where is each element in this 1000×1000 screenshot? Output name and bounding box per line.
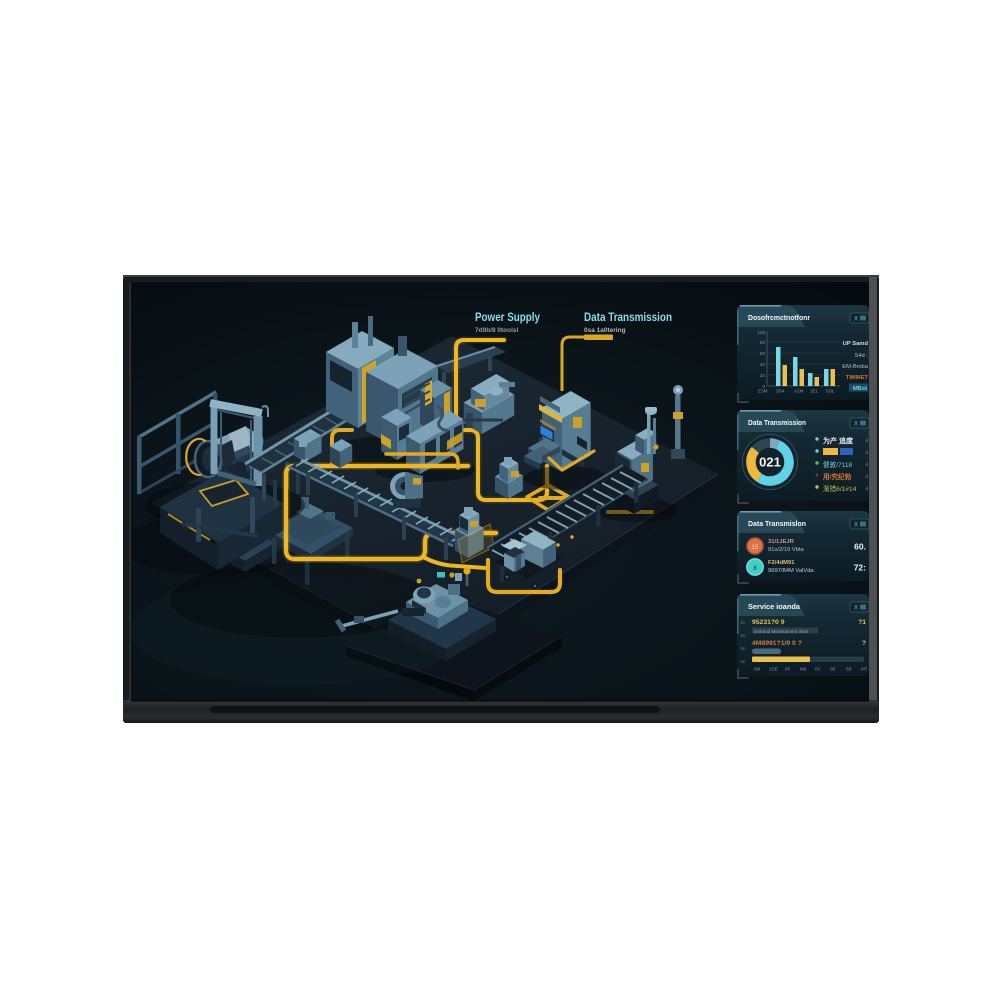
svg-text:F2/4dM91: F2/4dM91 — [768, 560, 795, 566]
svg-text:4M8991?1/9 0 ?: 4M8991?1/9 0 ? — [752, 640, 802, 647]
svg-text:0M: 0M — [754, 667, 761, 672]
svg-text:0E: 0E — [830, 667, 836, 672]
svg-text:M7: M7 — [861, 667, 868, 672]
svg-text:4s: 4s — [740, 659, 745, 664]
svg-text:Data Transmislon: Data Transmislon — [748, 519, 806, 528]
svg-text:d: d — [865, 450, 868, 455]
svg-text:d: d — [865, 474, 868, 479]
svg-text:TIMMET: TIMMET — [846, 375, 869, 381]
svg-text:03: 03 — [815, 667, 821, 672]
svg-text:D5L: D5L — [826, 389, 835, 394]
svg-text:0sa 1a0tering: 0sa 1a0tering — [584, 327, 626, 334]
svg-text:?1: ?1 — [858, 619, 866, 626]
svg-text:UP Samd: UP Samd — [843, 341, 869, 347]
svg-text:为产 追度: 为产 追度 — [823, 436, 854, 445]
svg-text:021: 021 — [759, 455, 781, 470]
svg-text:?: ? — [862, 640, 866, 647]
svg-text:MBst: MBst — [853, 386, 867, 392]
svg-text:d: d — [865, 462, 868, 467]
svg-text:E3M: E3M — [758, 389, 768, 394]
svg-text:5B: 5B — [846, 667, 852, 672]
svg-text:Power Supply: Power Supply — [475, 312, 541, 324]
svg-text:72:: 72: — [854, 563, 866, 573]
svg-text:91s/2/19 Vbta: 91s/2/19 Vbta — [768, 547, 805, 553]
svg-text:d: d — [865, 438, 868, 443]
svg-text:1s: 1s — [740, 620, 745, 625]
svg-text:31/1JEJR: 31/1JEJR — [768, 539, 795, 545]
svg-text:80: 80 — [760, 340, 766, 345]
svg-text:Data Transmission: Data Transmission — [748, 418, 806, 427]
svg-text:Data Transmission: Data Transmission — [584, 312, 672, 324]
svg-text:d: d — [865, 486, 868, 491]
svg-text:1EL: 1EL — [810, 389, 819, 394]
svg-text:Dosofrcmctnotfonr: Dosofrcmctnotfonr — [748, 313, 810, 322]
svg-text:Service ioanda: Service ioanda — [748, 602, 801, 611]
svg-text:smband Mnamamnnt 4h4s: smband Mnamamnnt 4h4s — [754, 629, 809, 634]
svg-text:健敦/7118: 健敦/7118 — [823, 460, 853, 469]
svg-text:95231?0 9: 95231?0 9 — [752, 619, 785, 626]
svg-text:100: 100 — [757, 330, 765, 335]
svg-text:15: 15 — [752, 545, 759, 551]
svg-text:A2M: A2M — [794, 389, 804, 394]
svg-text:1DE: 1DE — [769, 667, 778, 672]
svg-text:X: X — [854, 422, 858, 428]
svg-text:9697/84M ValVda: 9697/84M ValVda — [768, 568, 814, 574]
svg-text:20: 20 — [760, 373, 766, 378]
svg-text:S4d :: S4d : — [854, 353, 868, 359]
svg-text:2s: 2s — [740, 633, 745, 638]
svg-text:X: X — [854, 606, 858, 612]
svg-text:渐措6/1#14: 渐措6/1#14 — [823, 484, 857, 493]
svg-text:60: 60 — [760, 351, 766, 356]
svg-text:3D4: 3D4 — [776, 389, 785, 394]
svg-text:7d9b/8 0toolsl: 7d9b/8 0toolsl — [475, 327, 519, 334]
svg-text:用/究纪勃: 用/究纪勃 — [823, 472, 852, 481]
svg-text:40: 40 — [760, 362, 766, 367]
svg-text:60.: 60. — [854, 542, 866, 552]
svg-text:X: X — [854, 523, 858, 529]
svg-text:3s: 3s — [740, 646, 745, 651]
svg-text:X: X — [854, 317, 858, 323]
svg-text:0F: 0F — [785, 667, 791, 672]
svg-text:M9: M9 — [800, 667, 807, 672]
svg-text:EM-Bmba: EM-Bmba — [842, 364, 869, 370]
